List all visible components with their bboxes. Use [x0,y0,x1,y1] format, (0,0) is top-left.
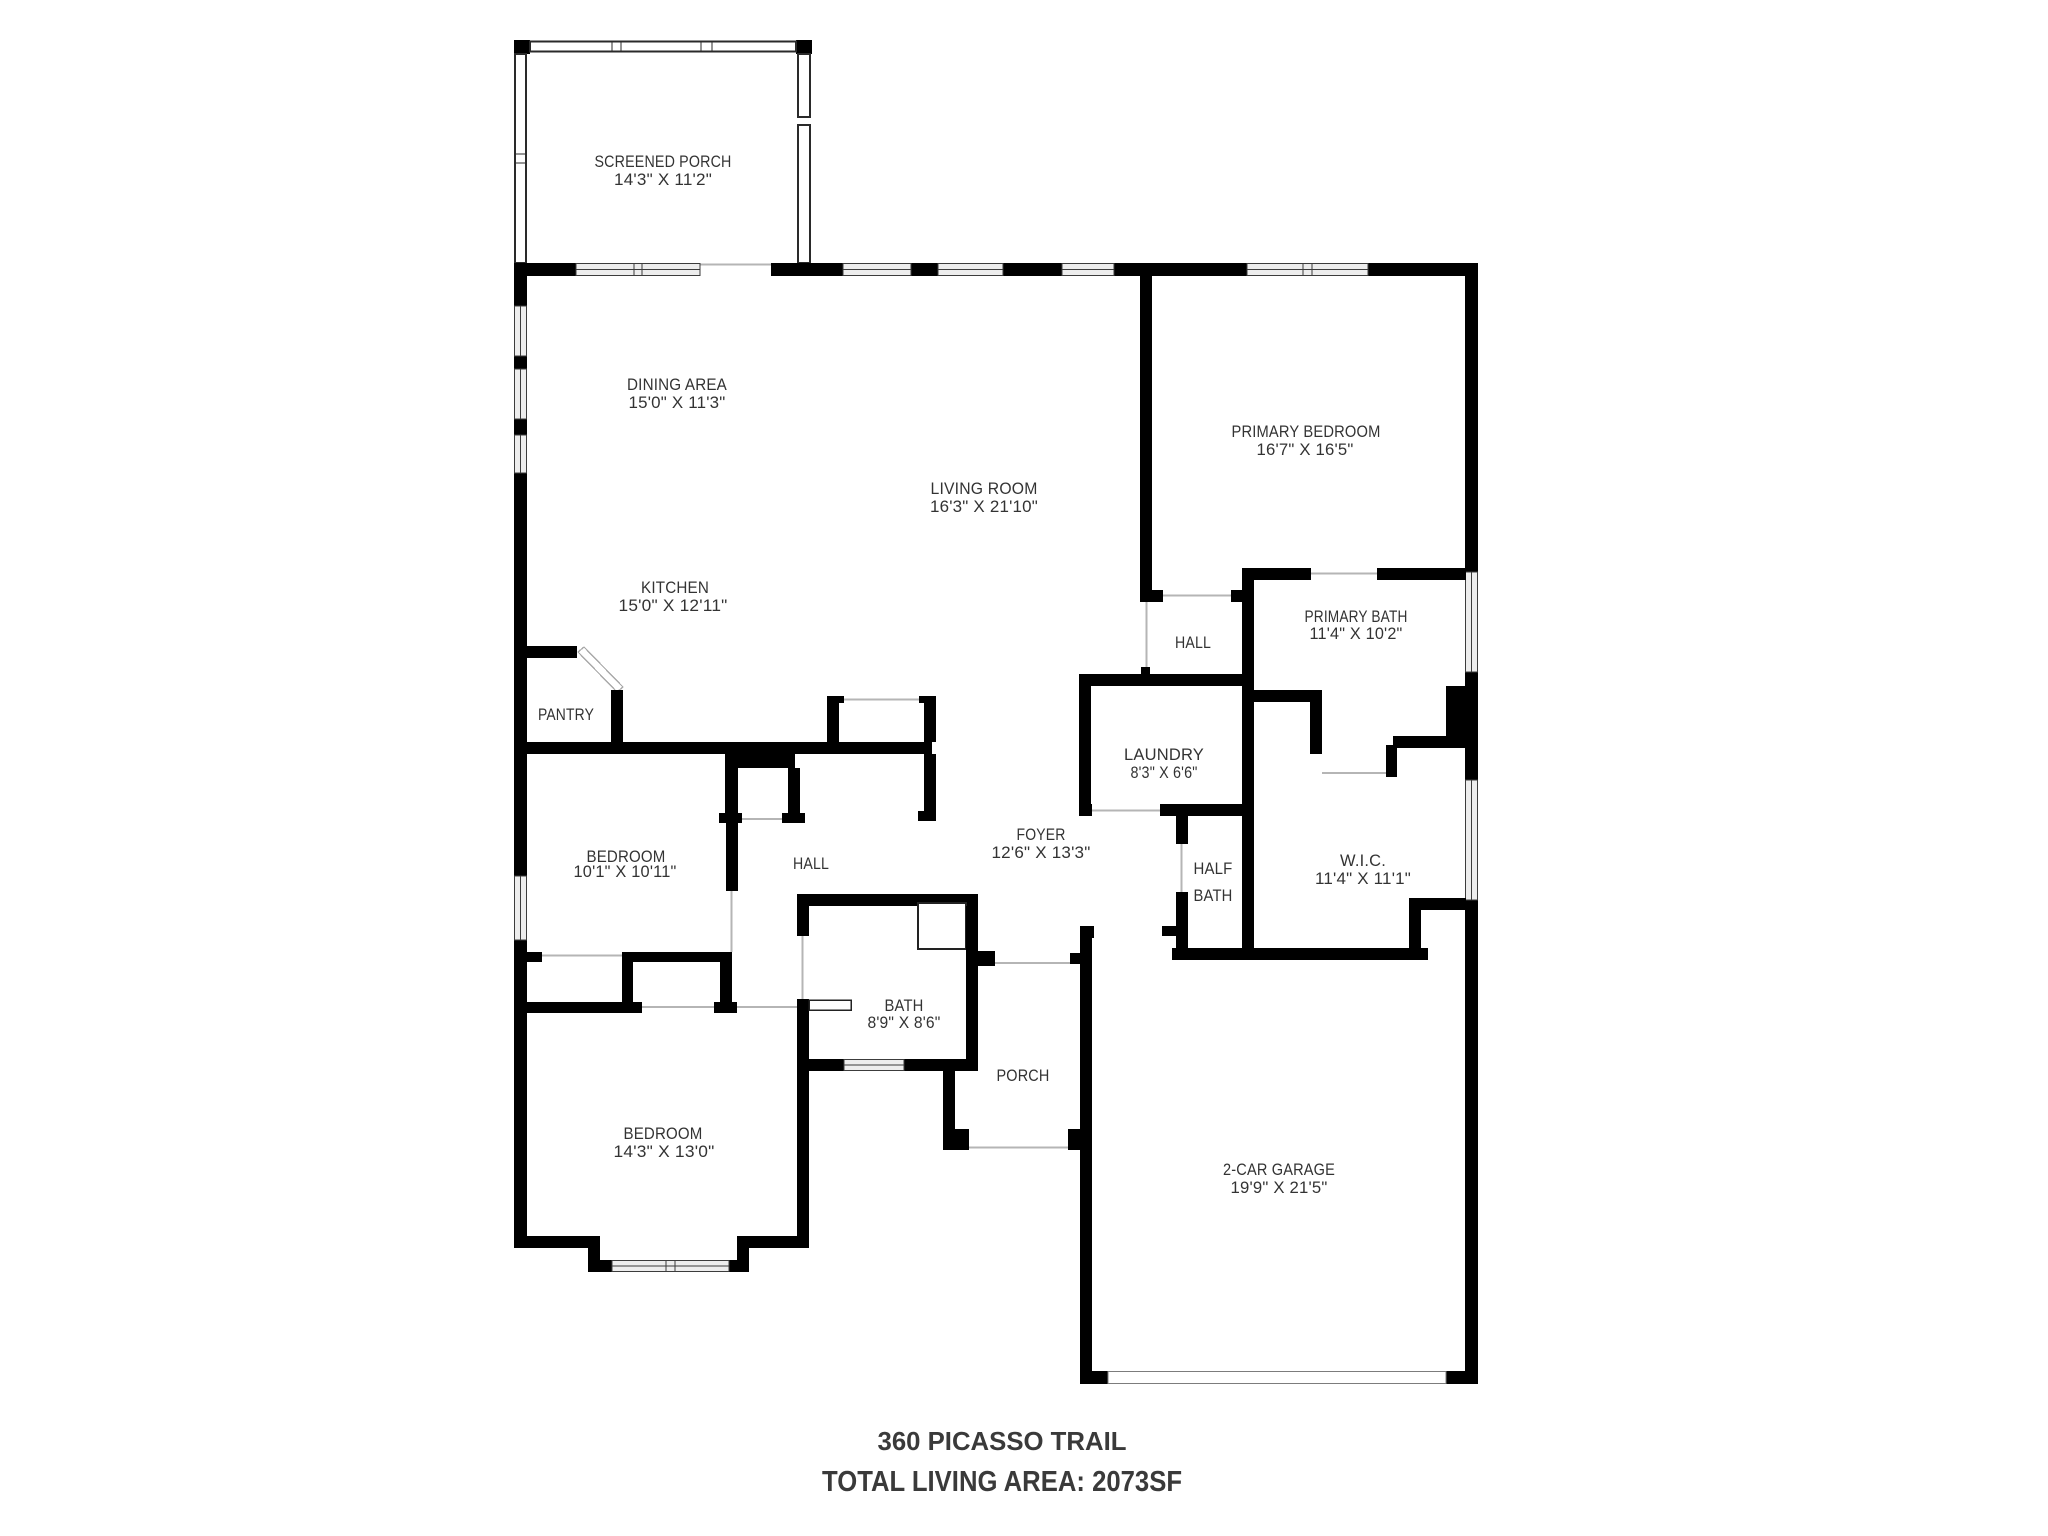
svg-text:HALL: HALL [1175,633,1211,652]
svg-text:11'4" X 10'2": 11'4" X 10'2" [1310,624,1403,643]
svg-text:LIVING ROOM: LIVING ROOM [931,479,1038,498]
svg-text:BEDROOM: BEDROOM [624,1124,703,1143]
svg-text:FOYER: FOYER [1017,825,1066,844]
svg-text:16'3" X 21'10": 16'3" X 21'10" [930,497,1038,516]
svg-text:W.I.C.: W.I.C. [1340,851,1386,870]
svg-text:19'9" X 21'5": 19'9" X 21'5" [1231,1178,1328,1197]
svg-text:TOTAL LIVING AREA: 2073SF: TOTAL LIVING AREA: 2073SF [822,1466,1182,1498]
svg-text:PANTRY: PANTRY [538,705,594,724]
svg-text:LAUNDRY: LAUNDRY [1124,745,1204,764]
svg-text:PRIMARY BEDROOM: PRIMARY BEDROOM [1232,422,1381,441]
svg-text:15'0" X 11'3": 15'0" X 11'3" [629,393,726,412]
svg-text:PORCH: PORCH [997,1066,1050,1085]
svg-text:SCREENED PORCH: SCREENED PORCH [595,152,732,171]
svg-text:HALL: HALL [793,854,829,873]
svg-text:BATH: BATH [1194,886,1233,905]
svg-text:8'9" X 8'6": 8'9" X 8'6" [868,1013,941,1032]
svg-text:11'4" X 11'1": 11'4" X 11'1" [1315,869,1411,888]
svg-text:14'3" X 11'2": 14'3" X 11'2" [614,170,712,189]
svg-text:KITCHEN: KITCHEN [641,578,709,597]
svg-text:16'7" X 16'5": 16'7" X 16'5" [1257,440,1354,459]
svg-text:360 PICASSO TRAIL: 360 PICASSO TRAIL [878,1426,1127,1456]
svg-text:14'3" X 13'0": 14'3" X 13'0" [614,1142,715,1161]
svg-text:15'0" X 12'11": 15'0" X 12'11" [619,596,728,615]
svg-text:2-CAR GARAGE: 2-CAR GARAGE [1223,1160,1335,1179]
svg-text:DINING AREA: DINING AREA [627,375,727,394]
svg-text:HALF: HALF [1194,859,1233,878]
svg-text:12'6" X 13'3": 12'6" X 13'3" [992,843,1091,862]
svg-text:8'3" X 6'6": 8'3" X 6'6" [1131,763,1198,782]
svg-text:10'1" X 10'11": 10'1" X 10'11" [574,862,677,881]
